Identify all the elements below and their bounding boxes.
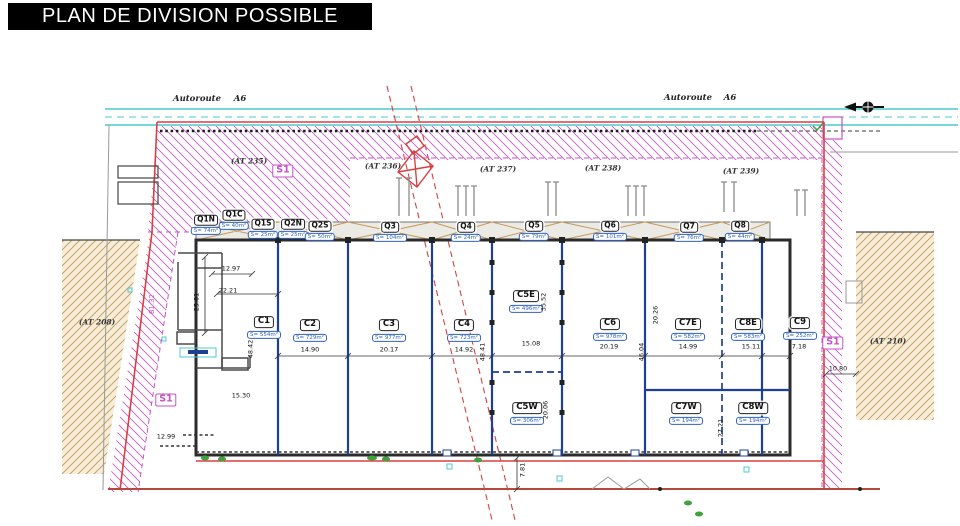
title-bar: PLAN DE DIVISION POSSIBLE (8, 3, 372, 30)
hatched-areas (62, 126, 934, 492)
page-title: PLAN DE DIVISION POSSIBLE (42, 5, 338, 28)
mast-posts (396, 178, 808, 216)
q-band (196, 222, 770, 240)
north-arrow-icon (844, 102, 884, 113)
plan-canvas: AutorouteA6AutorouteA6(AT 235)(AT 236)(A… (0, 0, 960, 526)
unit-partitions (275, 237, 790, 456)
plan-drawing (0, 0, 960, 526)
misc-marks (128, 288, 749, 517)
